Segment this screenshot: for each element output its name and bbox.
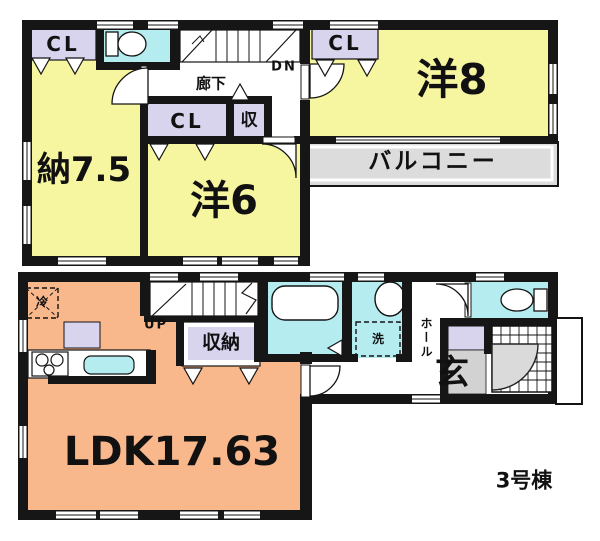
- toilet-tank-2f-icon: [106, 32, 118, 56]
- toilet-bowl-1f-icon: [501, 289, 533, 311]
- door-ldk-hall: [310, 366, 340, 396]
- label-closet-mid: CL: [170, 111, 203, 131]
- label-closet-top-left: CL: [46, 34, 79, 54]
- label-storage-1f: 収納: [202, 334, 240, 353]
- label-storage-room: 納7.5: [37, 153, 131, 187]
- label-washer: 洗: [372, 333, 384, 345]
- label-balcony: バルコニー: [368, 151, 498, 174]
- label-hall: ホール: [420, 317, 432, 359]
- label-western-8: 洋8: [416, 59, 487, 101]
- kitchen-cabinet: [64, 322, 100, 348]
- stairs-1f: [150, 282, 258, 316]
- entrance-porch: [492, 318, 582, 404]
- label-stairs-down: DN: [271, 61, 297, 74]
- floor-plan: CL CL 収 CL 納7.5 洋6 洋8 廊下 DN バルコニー UP 収納 …: [0, 0, 600, 541]
- toilet-tank-1f-icon: [534, 289, 547, 311]
- entrance-step: [556, 318, 582, 404]
- shoe-cabinet: [448, 326, 486, 350]
- washbasin-icon: [375, 282, 405, 316]
- toilet-bowl-2f-icon: [118, 32, 146, 56]
- label-closet-small: 収: [241, 113, 258, 130]
- stairs-2f: [180, 30, 300, 62]
- sink-icon: [84, 356, 134, 374]
- label-western-6: 洋6: [190, 181, 258, 221]
- label-stairs-up: UP: [144, 319, 168, 332]
- label-entrance: 玄: [435, 356, 469, 390]
- bathtub-icon: [272, 286, 338, 320]
- label-ldk: LDK17.63: [64, 432, 280, 472]
- label-refrigerator: 冷: [36, 296, 48, 308]
- door-toilet-1f: [436, 284, 468, 316]
- label-building: 3号棟: [496, 471, 553, 492]
- label-closet-top-right: CL: [328, 33, 361, 53]
- label-corridor: 廊下: [196, 77, 226, 92]
